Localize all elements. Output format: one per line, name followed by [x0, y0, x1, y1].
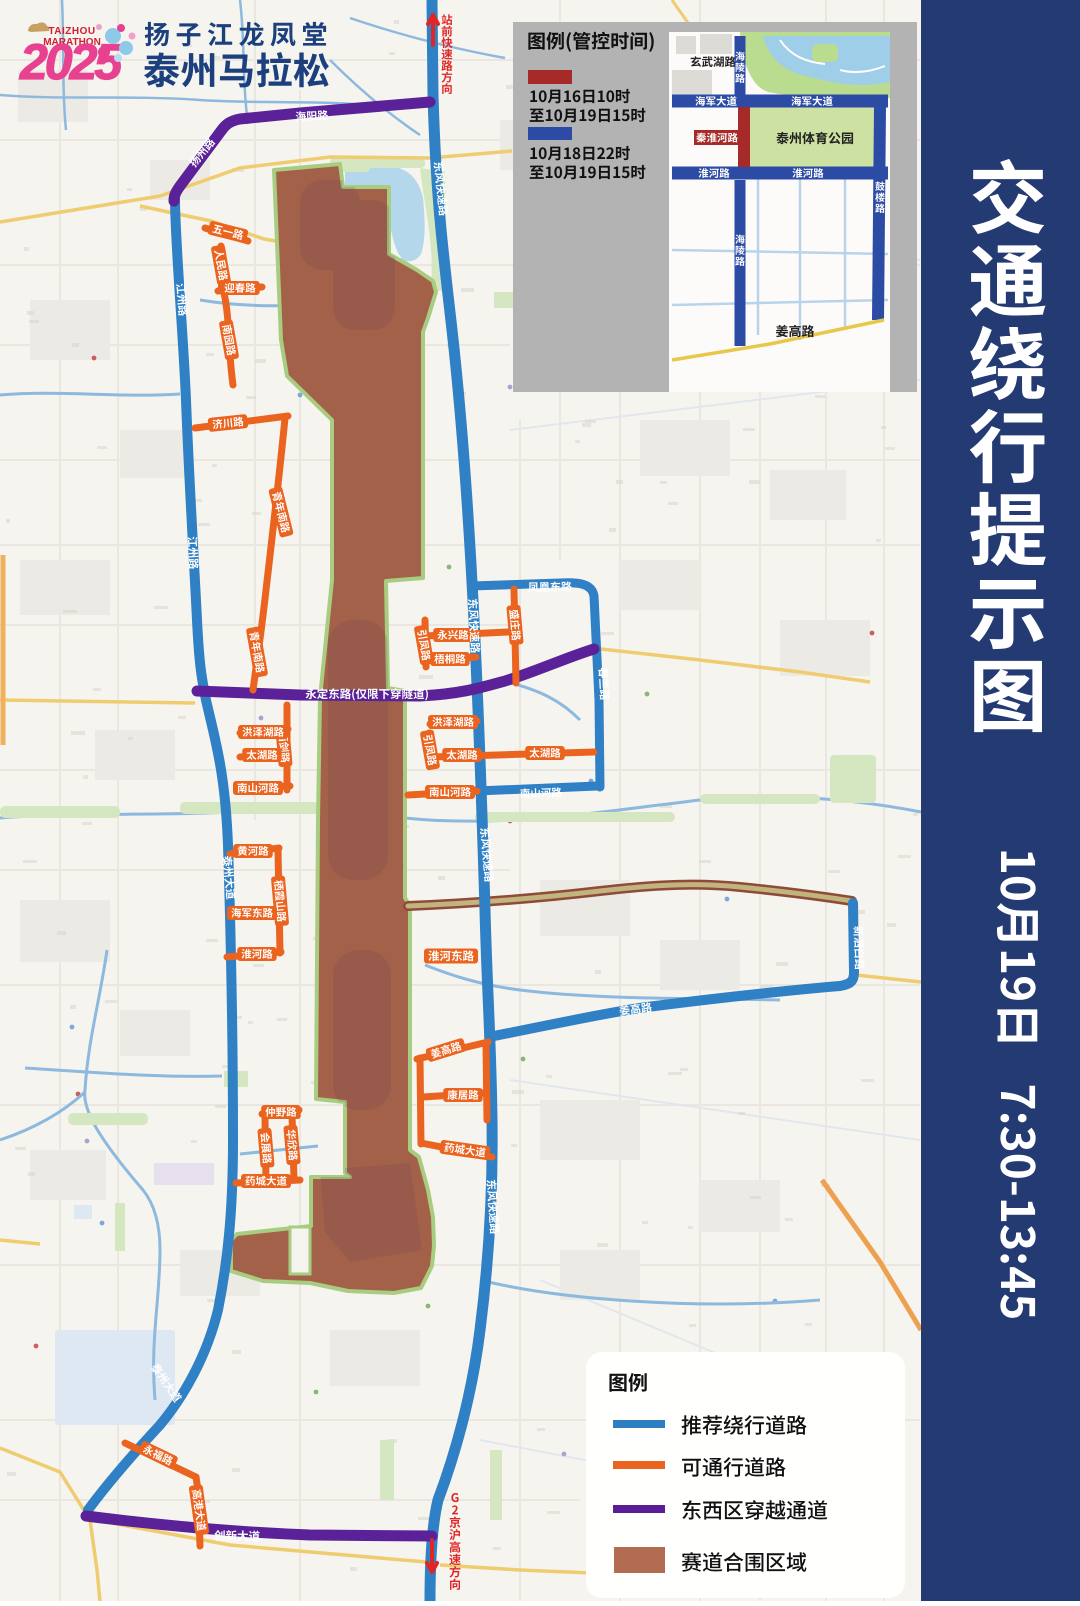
svg-text:2025: 2025 [19, 34, 123, 90]
